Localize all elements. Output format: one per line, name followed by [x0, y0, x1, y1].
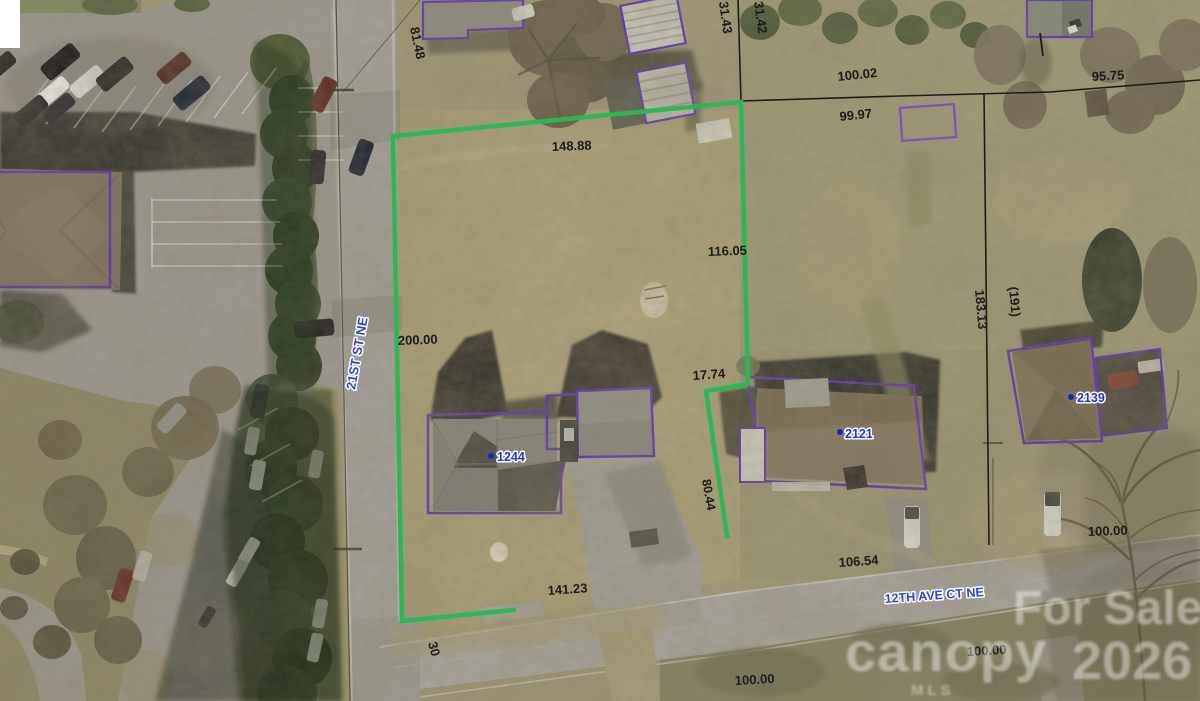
svg-text:116.05: 116.05 [708, 243, 748, 259]
svg-text:2026: 2026 [1072, 631, 1192, 691]
svg-text:200.00: 200.00 [398, 332, 438, 348]
svg-text:141.23: 141.23 [547, 580, 588, 598]
svg-text:100.00: 100.00 [734, 671, 774, 688]
svg-text:100.00: 100.00 [1088, 523, 1128, 539]
svg-text:148.88: 148.88 [552, 138, 592, 154]
svg-text:17.74: 17.74 [692, 366, 726, 383]
svg-text:MLS: MLS [911, 682, 955, 699]
svg-text:canopy: canopy [845, 620, 1047, 683]
svg-text:2121: 2121 [845, 427, 873, 441]
svg-text:1244: 1244 [497, 450, 525, 464]
svg-text:2139: 2139 [1077, 391, 1105, 405]
svg-text:106.54: 106.54 [838, 552, 879, 570]
svg-text:(191): (191) [1006, 286, 1024, 318]
svg-text:95.75: 95.75 [1091, 67, 1124, 84]
